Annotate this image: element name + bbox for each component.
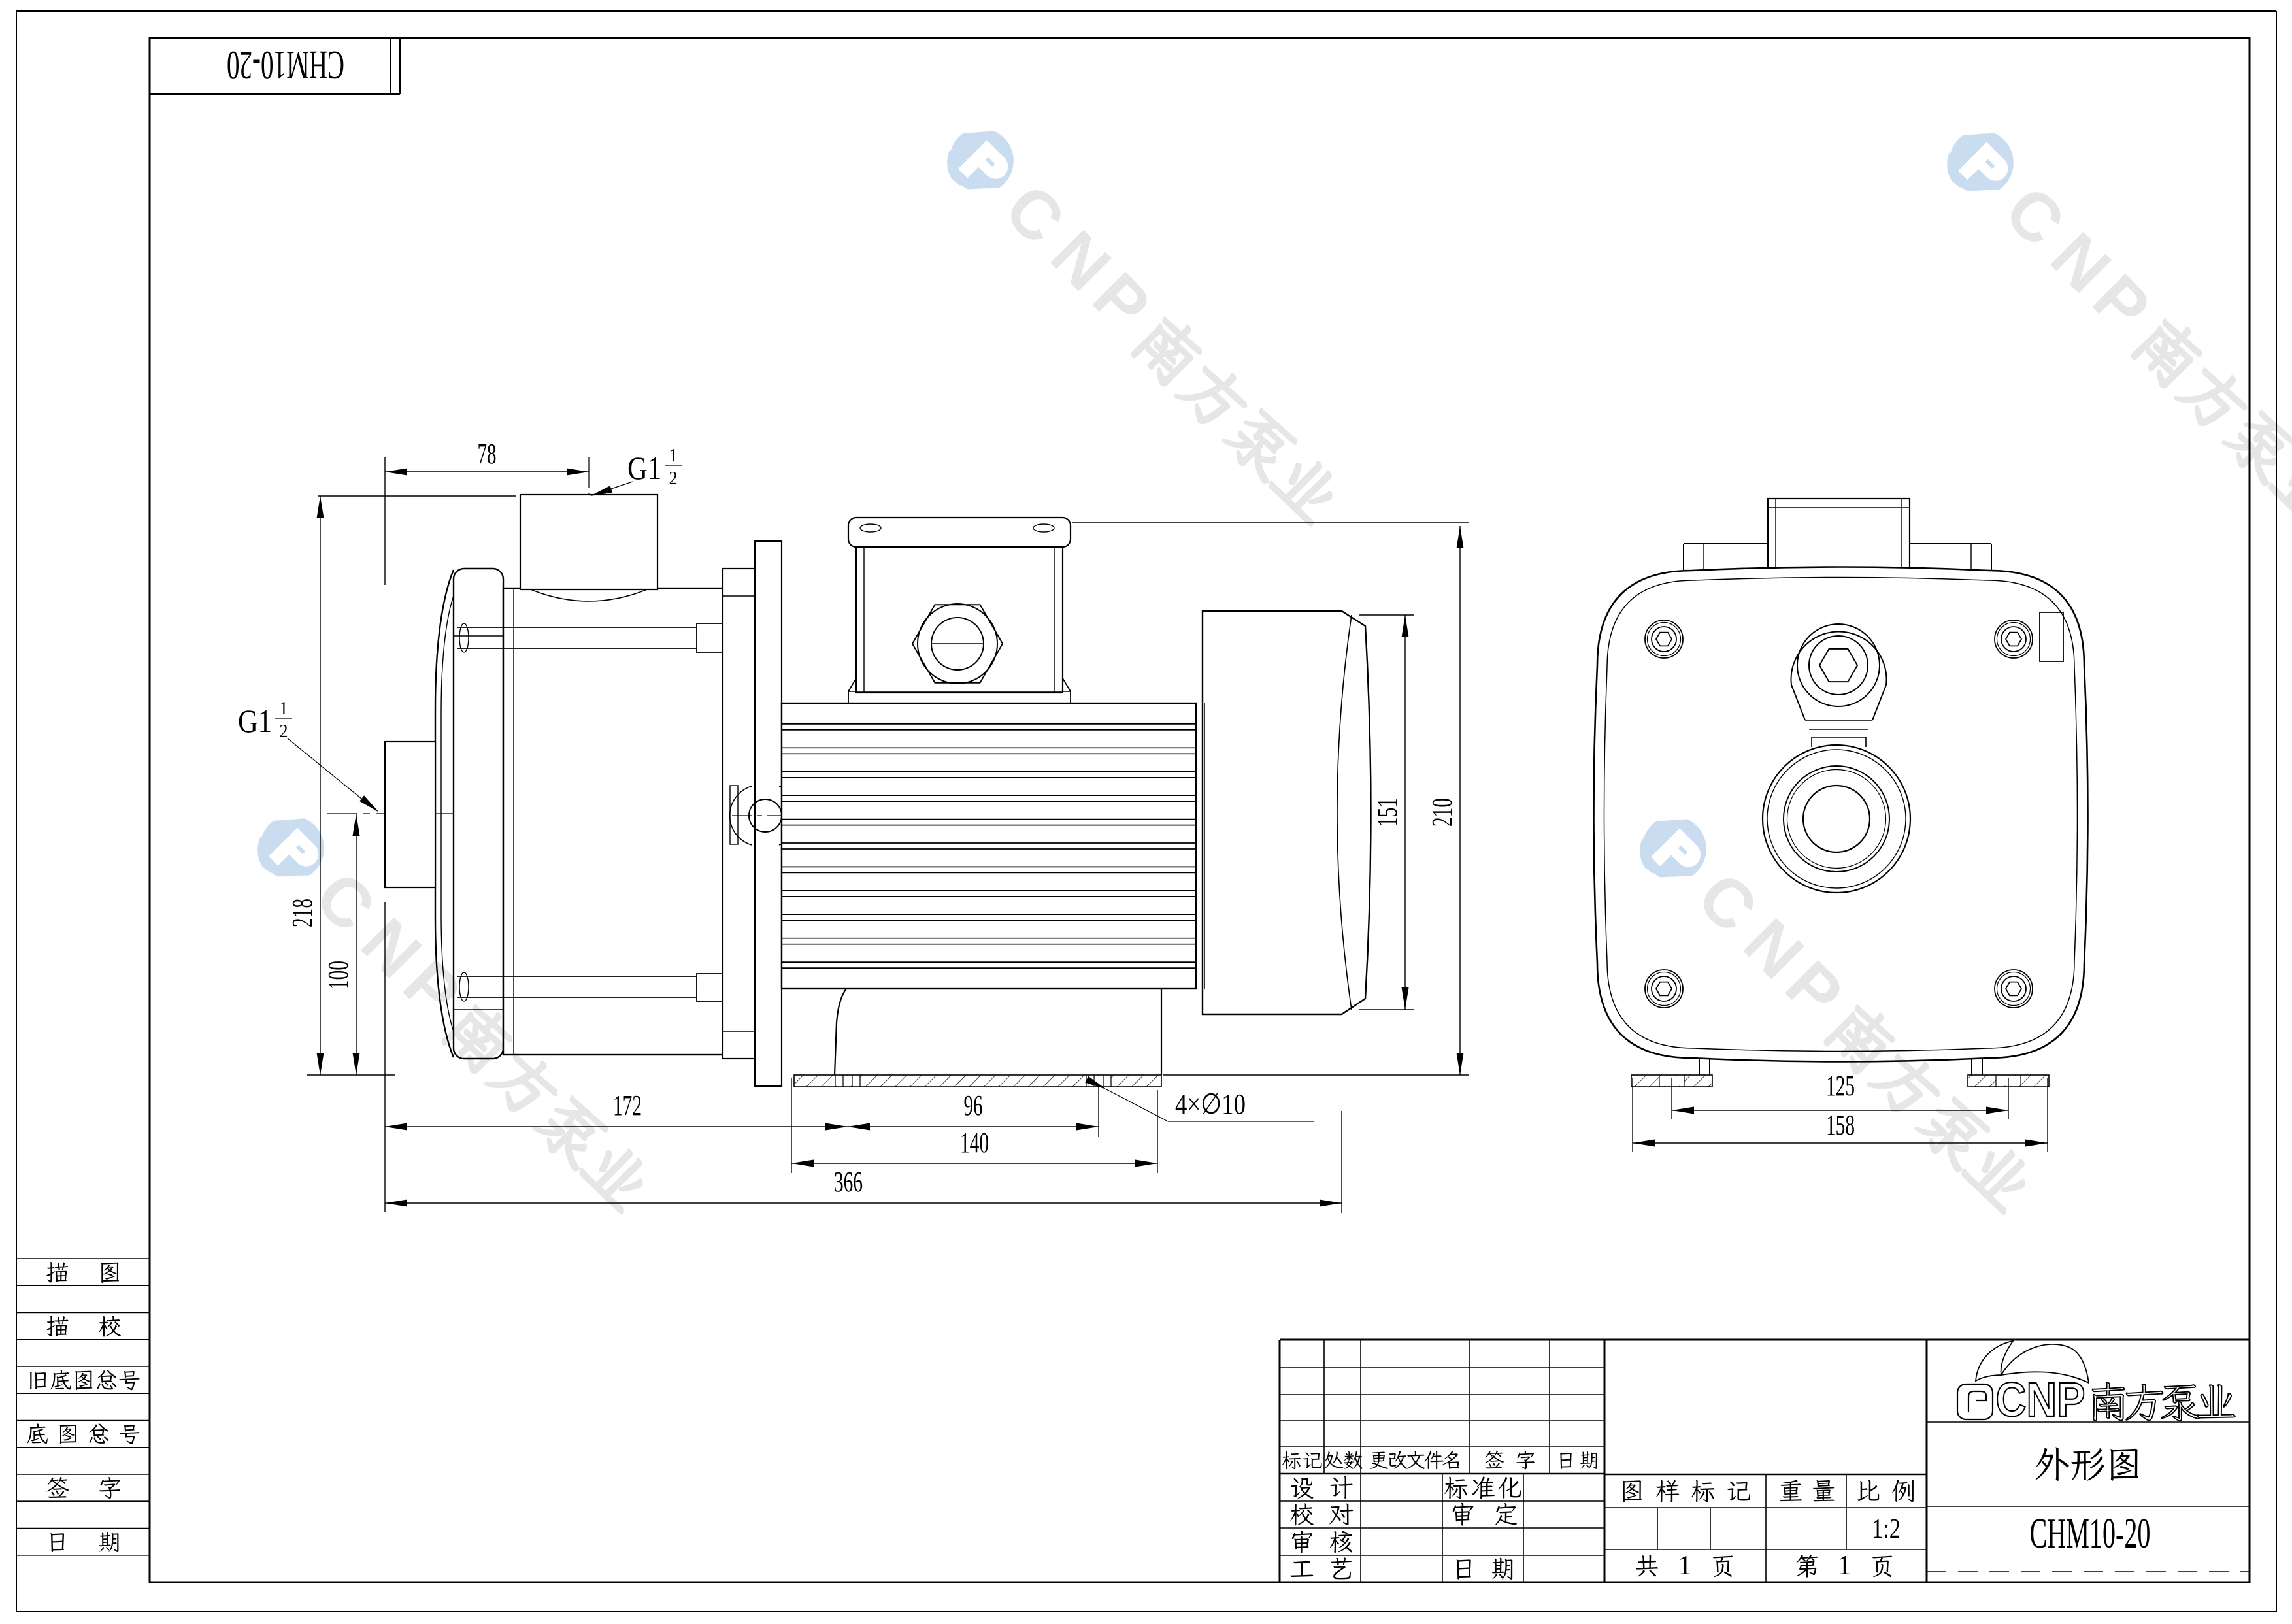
svg-text:366: 366 — [834, 1166, 863, 1198]
svg-text:1: 1 — [280, 699, 288, 719]
svg-text:CNP: CNP — [1996, 1372, 2085, 1427]
svg-text:1:2: 1:2 — [1872, 1514, 1901, 1544]
svg-text:1: 1 — [669, 446, 678, 466]
svg-text:172: 172 — [613, 1089, 642, 1121]
svg-text:G1: G1 — [627, 450, 661, 486]
svg-text:158: 158 — [1826, 1109, 1855, 1141]
svg-text:2: 2 — [280, 721, 288, 742]
svg-text:4×∅10: 4×∅10 — [1175, 1088, 1246, 1120]
svg-text:CHM10-20: CHM10-20 — [2030, 1510, 2151, 1557]
svg-text:100: 100 — [322, 961, 354, 989]
svg-text:151: 151 — [1371, 798, 1403, 827]
svg-text:125: 125 — [1826, 1070, 1855, 1102]
svg-text:78: 78 — [478, 438, 497, 470]
svg-text:210: 210 — [1426, 798, 1458, 827]
svg-text:96: 96 — [964, 1089, 983, 1121]
svg-text:G1: G1 — [238, 703, 272, 739]
svg-text:CHM10-20: CHM10-20 — [227, 42, 344, 87]
svg-text:1: 1 — [1838, 1551, 1852, 1581]
svg-text:1: 1 — [1678, 1551, 1692, 1581]
svg-text:140: 140 — [960, 1127, 989, 1159]
svg-text:2: 2 — [669, 469, 678, 489]
